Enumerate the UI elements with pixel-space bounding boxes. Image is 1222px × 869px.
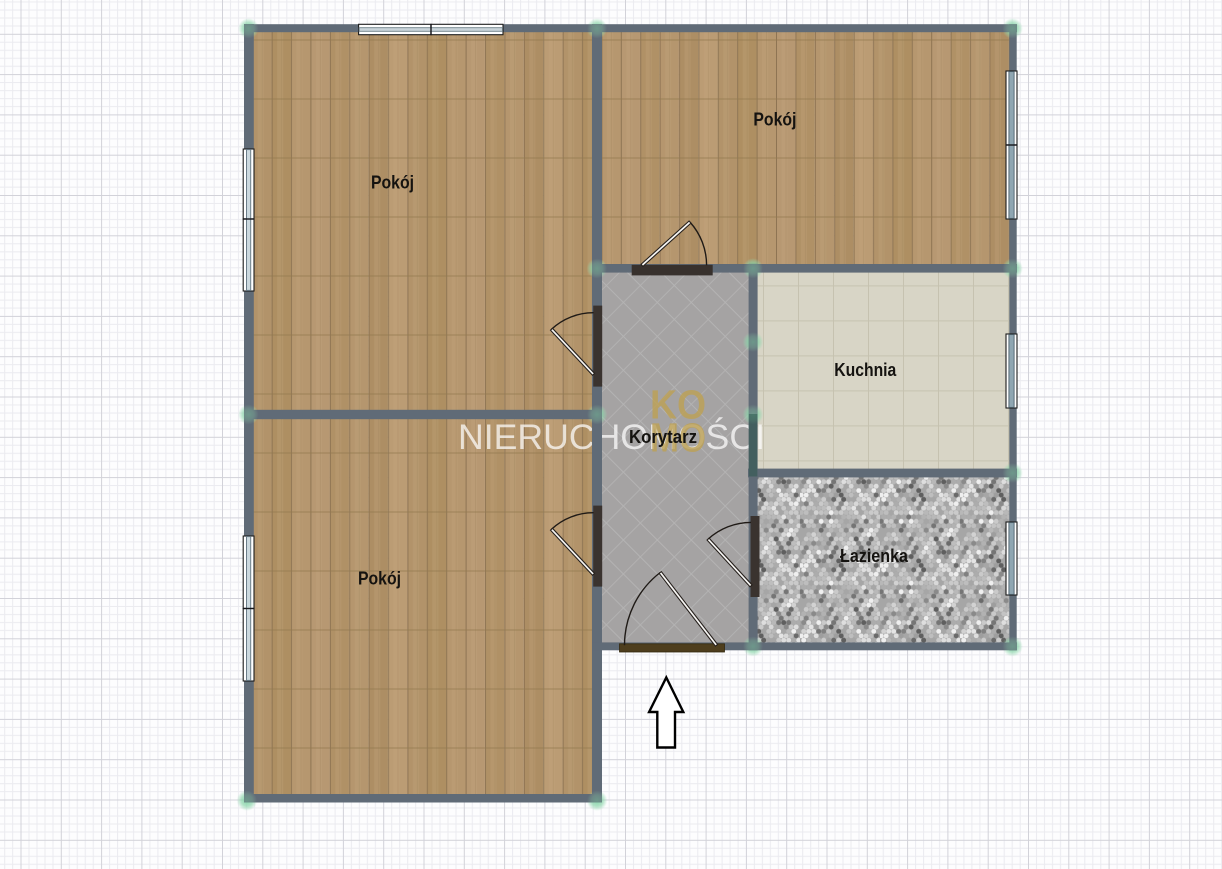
svg-text:Korytarz: Korytarz — [629, 427, 697, 447]
svg-text:Kuchnia: Kuchnia — [834, 360, 897, 380]
svg-text:Pokój: Pokój — [371, 173, 414, 193]
svg-text:NIERUCHOMOŚCI: NIERUCHOMOŚCI — [458, 417, 765, 457]
svg-text:Pokój: Pokój — [753, 109, 796, 129]
svg-text:Łazienka: Łazienka — [840, 546, 909, 566]
svg-text:Pokój: Pokój — [358, 569, 401, 589]
